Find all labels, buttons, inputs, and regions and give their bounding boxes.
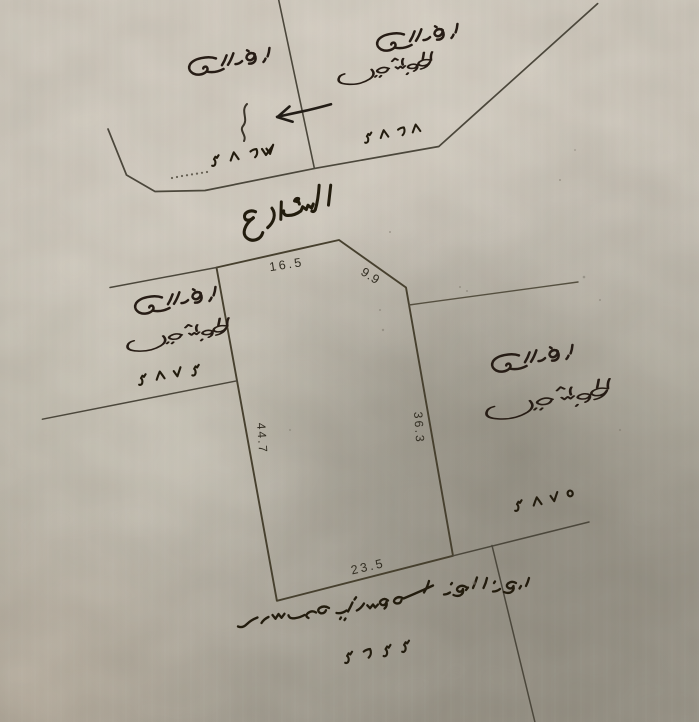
svg-text:36.3: 36.3 <box>411 411 427 444</box>
svg-text:44.7: 44.7 <box>254 422 270 454</box>
